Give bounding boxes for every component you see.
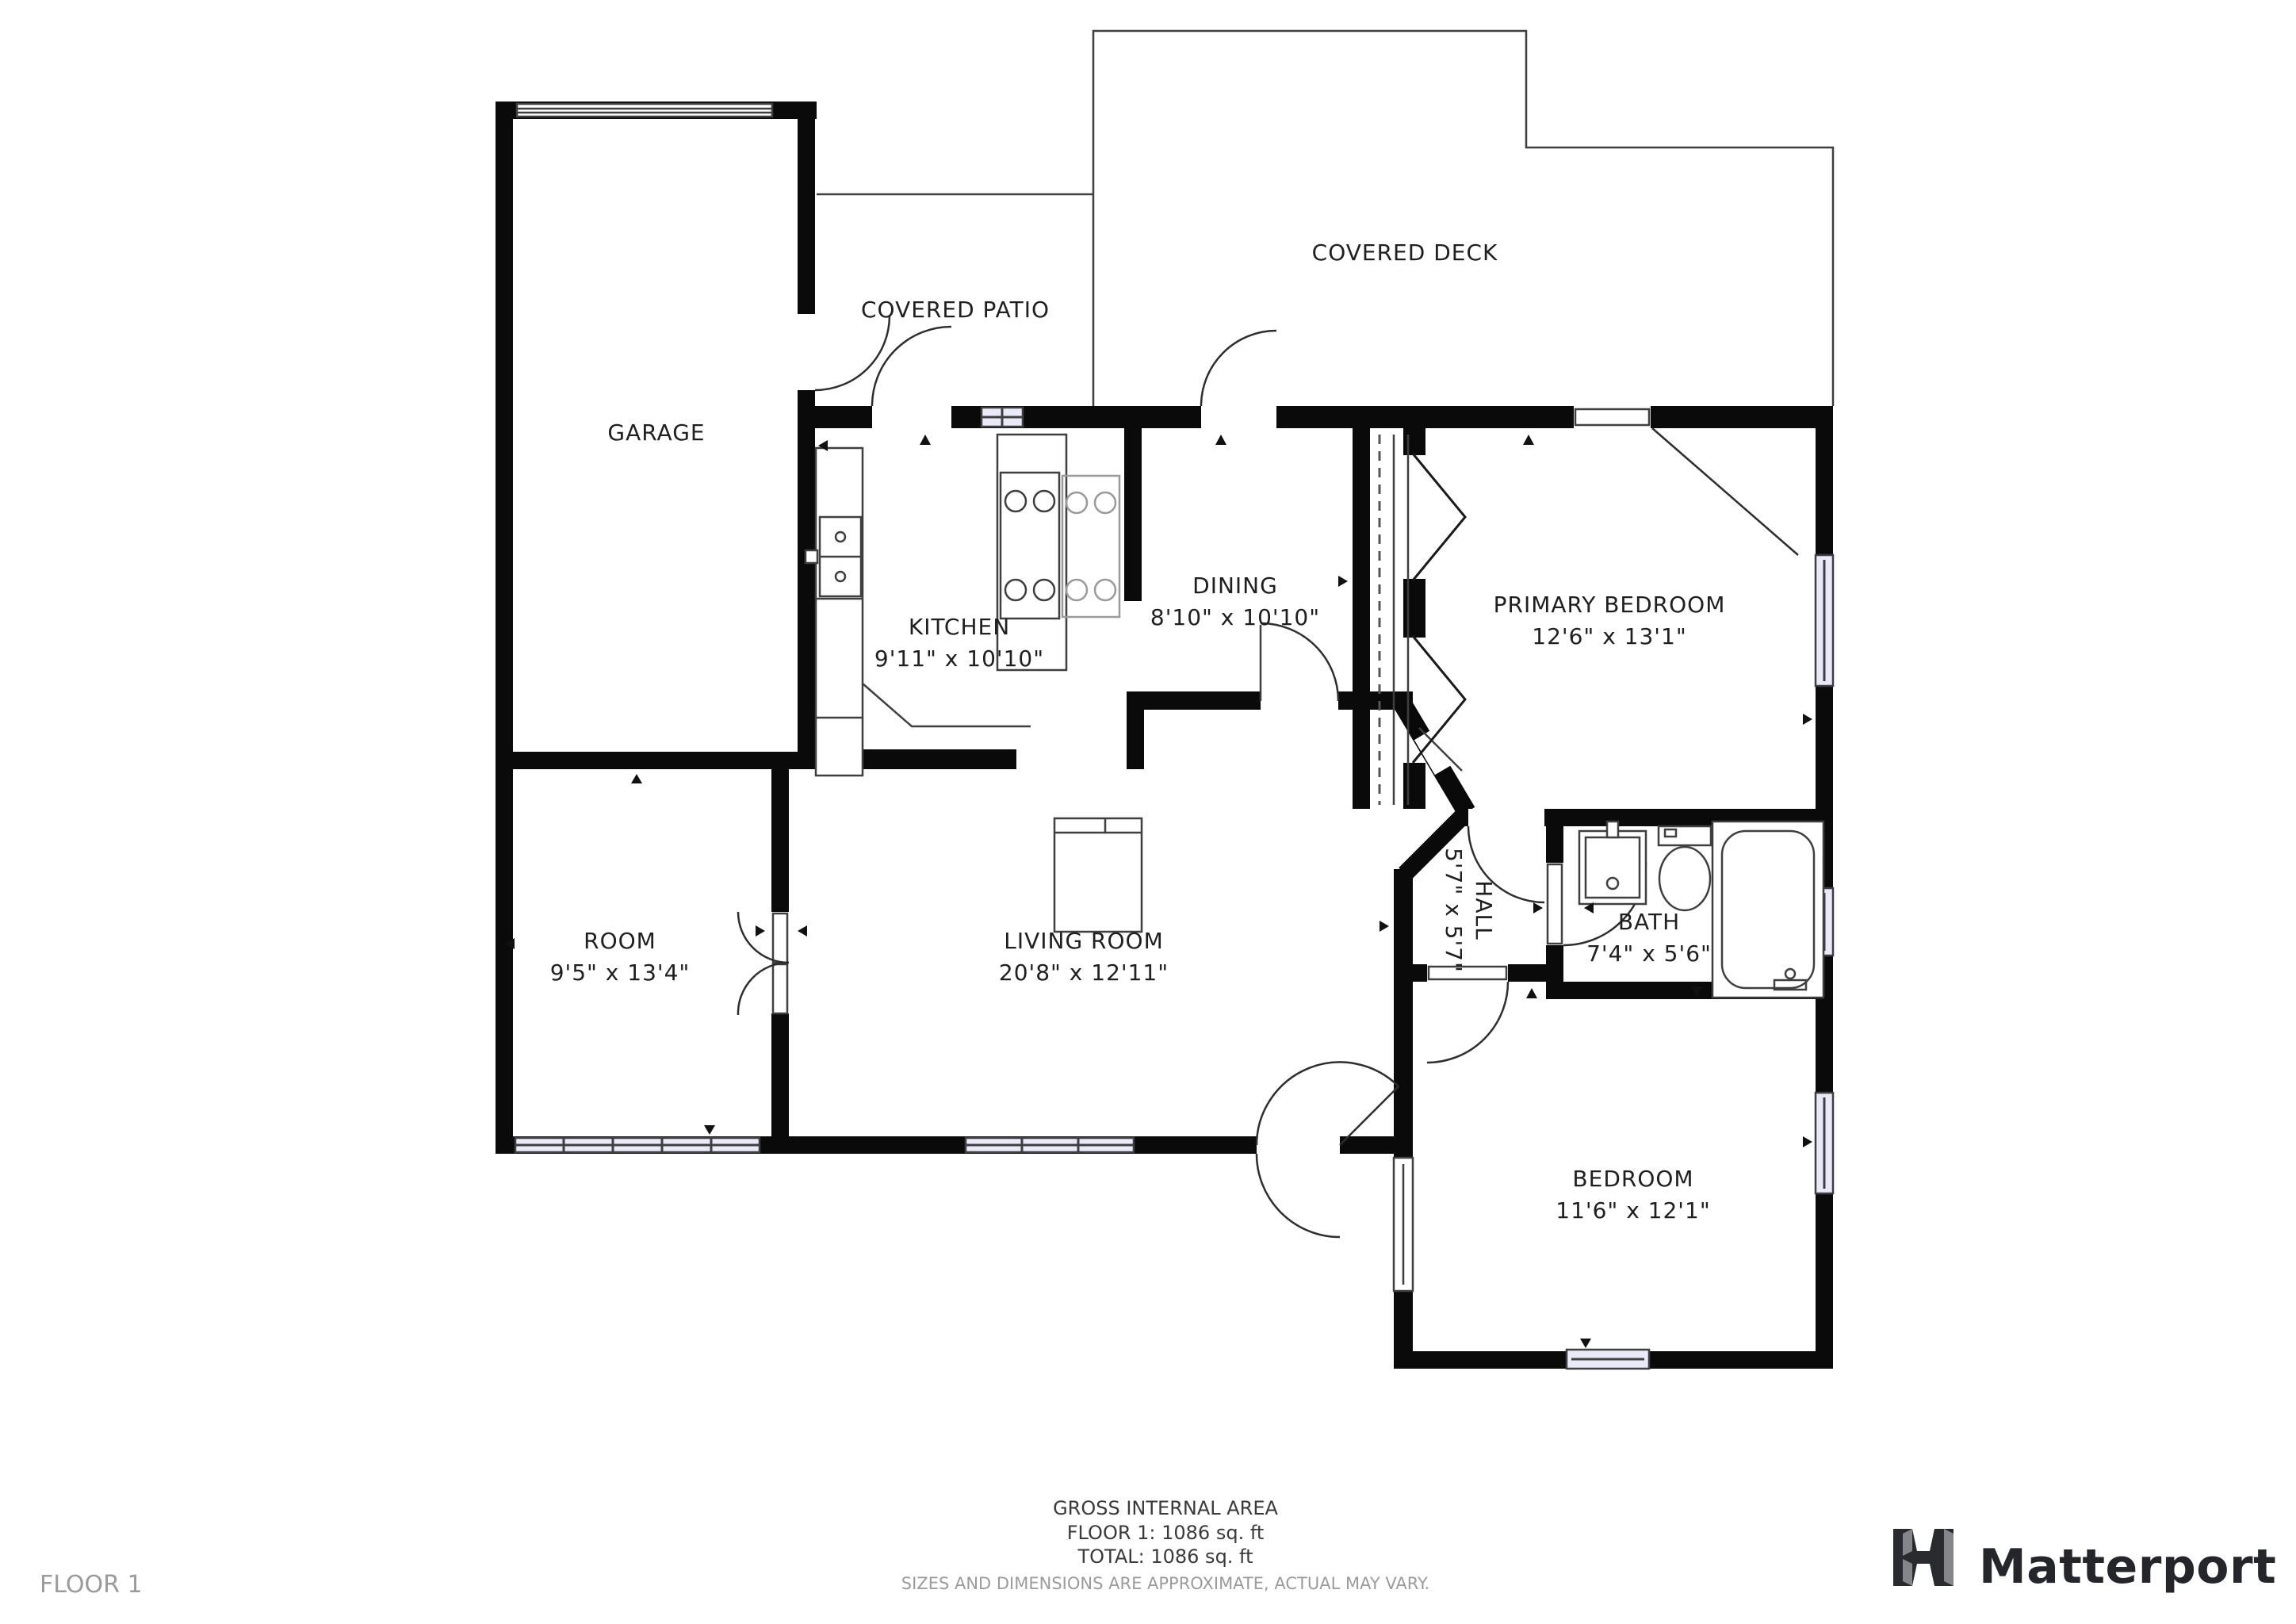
bath-dims: 7'4" x 5'6": [1586, 940, 1712, 967]
bathtub-icon: [1712, 822, 1823, 998]
dining-hall-door: [1261, 623, 1338, 701]
primary-bedroom-window: [1816, 555, 1833, 686]
kitchen-label: KITCHEN: [909, 614, 1010, 640]
dining-label: DINING: [1192, 573, 1278, 599]
room-double-doors: [738, 912, 789, 1015]
bedroom-dims: 11'6" x 12'1": [1556, 1197, 1710, 1224]
bath-label: BATH: [1618, 909, 1680, 935]
matterport-logo-text: Matterport: [1979, 1539, 2276, 1595]
primary-bedroom-dims: 12'6" x 13'1": [1532, 623, 1686, 649]
covered-patio-label: COVERED PATIO: [861, 297, 1050, 323]
gross-area-label: GROSS INTERNAL AREA: [1053, 1497, 1278, 1519]
outdoor-outlines: [817, 31, 1833, 406]
floor-tag: FLOOR 1: [40, 1571, 143, 1599]
bedroom-sidelight: [1394, 1158, 1413, 1291]
kitchen-window: [982, 408, 1023, 427]
garage-label: GARAGE: [607, 419, 705, 446]
hall-label-group: HALL 5'7" x 5'7": [1441, 848, 1497, 973]
bedroom-side-window: [1816, 1093, 1833, 1193]
patio-door-arc: [872, 327, 951, 406]
room-window-band: [515, 1138, 760, 1152]
bath-fixtures: [1579, 822, 1823, 998]
room-label: ROOM: [584, 928, 656, 954]
hall-label: HALL: [1471, 880, 1497, 940]
toilet-icon: [1659, 826, 1711, 910]
deck-door-arc: [1201, 331, 1276, 406]
living-room-window-band: [966, 1138, 1134, 1152]
covered-deck-outline: [1093, 31, 1833, 406]
bedroom-label: BEDROOM: [1572, 1166, 1693, 1192]
matterport-logo: Matterport: [1893, 1529, 2276, 1595]
total-area-value: TOTAL: 1086 sq. ft: [1077, 1545, 1253, 1568]
doors: [738, 316, 1798, 1237]
bath-sink-icon: [1579, 822, 1646, 904]
kitchen-fixtures: [806, 435, 1142, 932]
garage-door: [517, 104, 772, 117]
kitchen-dims: 9'11" x 10'10": [874, 645, 1044, 672]
footer: GROSS INTERNAL AREA FLOOR 1: 1086 sq. ft…: [40, 1497, 1429, 1599]
cooktop-icon: [1001, 473, 1119, 619]
floor-plan-canvas: GARAGE COVERED PATIO COVERED DECK KITCHE…: [0, 0, 2296, 1624]
living-room-label: LIVING ROOM: [1004, 928, 1164, 954]
covered-deck-label: COVERED DECK: [1312, 239, 1498, 266]
refrigerator-icon: [1054, 818, 1142, 932]
room-dims: 9'5" x 13'4": [550, 959, 691, 986]
garage-side-door-arc: [815, 316, 890, 390]
hall-dims: 5'7" x 5'7": [1441, 848, 1467, 973]
primary-deck-door: [1575, 409, 1798, 555]
matterport-logo-icon: [1893, 1529, 1954, 1586]
bifold-door-icon: [1413, 454, 1465, 580]
bedroom-bottom-window: [1567, 1350, 1649, 1369]
floor-area-value: FLOOR 1: 1086 sq. ft: [1067, 1522, 1265, 1544]
disclaimer-text: SIZES AND DIMENSIONS ARE APPROXIMATE, AC…: [901, 1574, 1429, 1593]
dining-dims: 8'10" x 10'10": [1150, 604, 1320, 630]
primary-bedroom-label: PRIMARY BEDROOM: [1494, 592, 1726, 618]
living-room-dims: 20'8" x 12'11": [999, 959, 1169, 986]
